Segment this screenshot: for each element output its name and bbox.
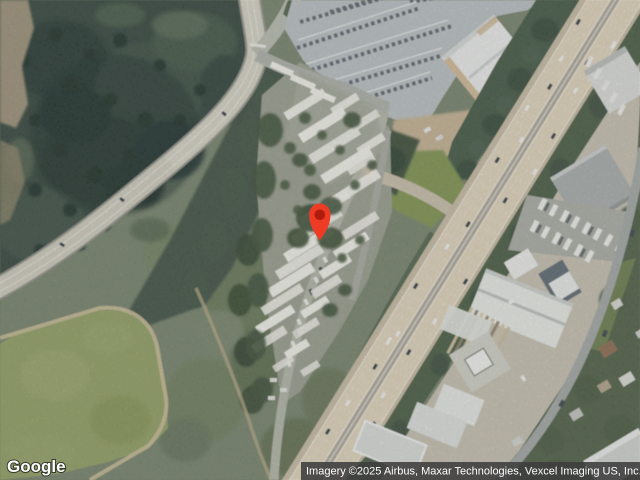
svg-text:Imagery ©2025 Airbus, Maxar Te: Imagery ©2025 Airbus, Maxar Technologies… [306, 466, 640, 478]
svg-text:Google: Google [7, 457, 66, 476]
